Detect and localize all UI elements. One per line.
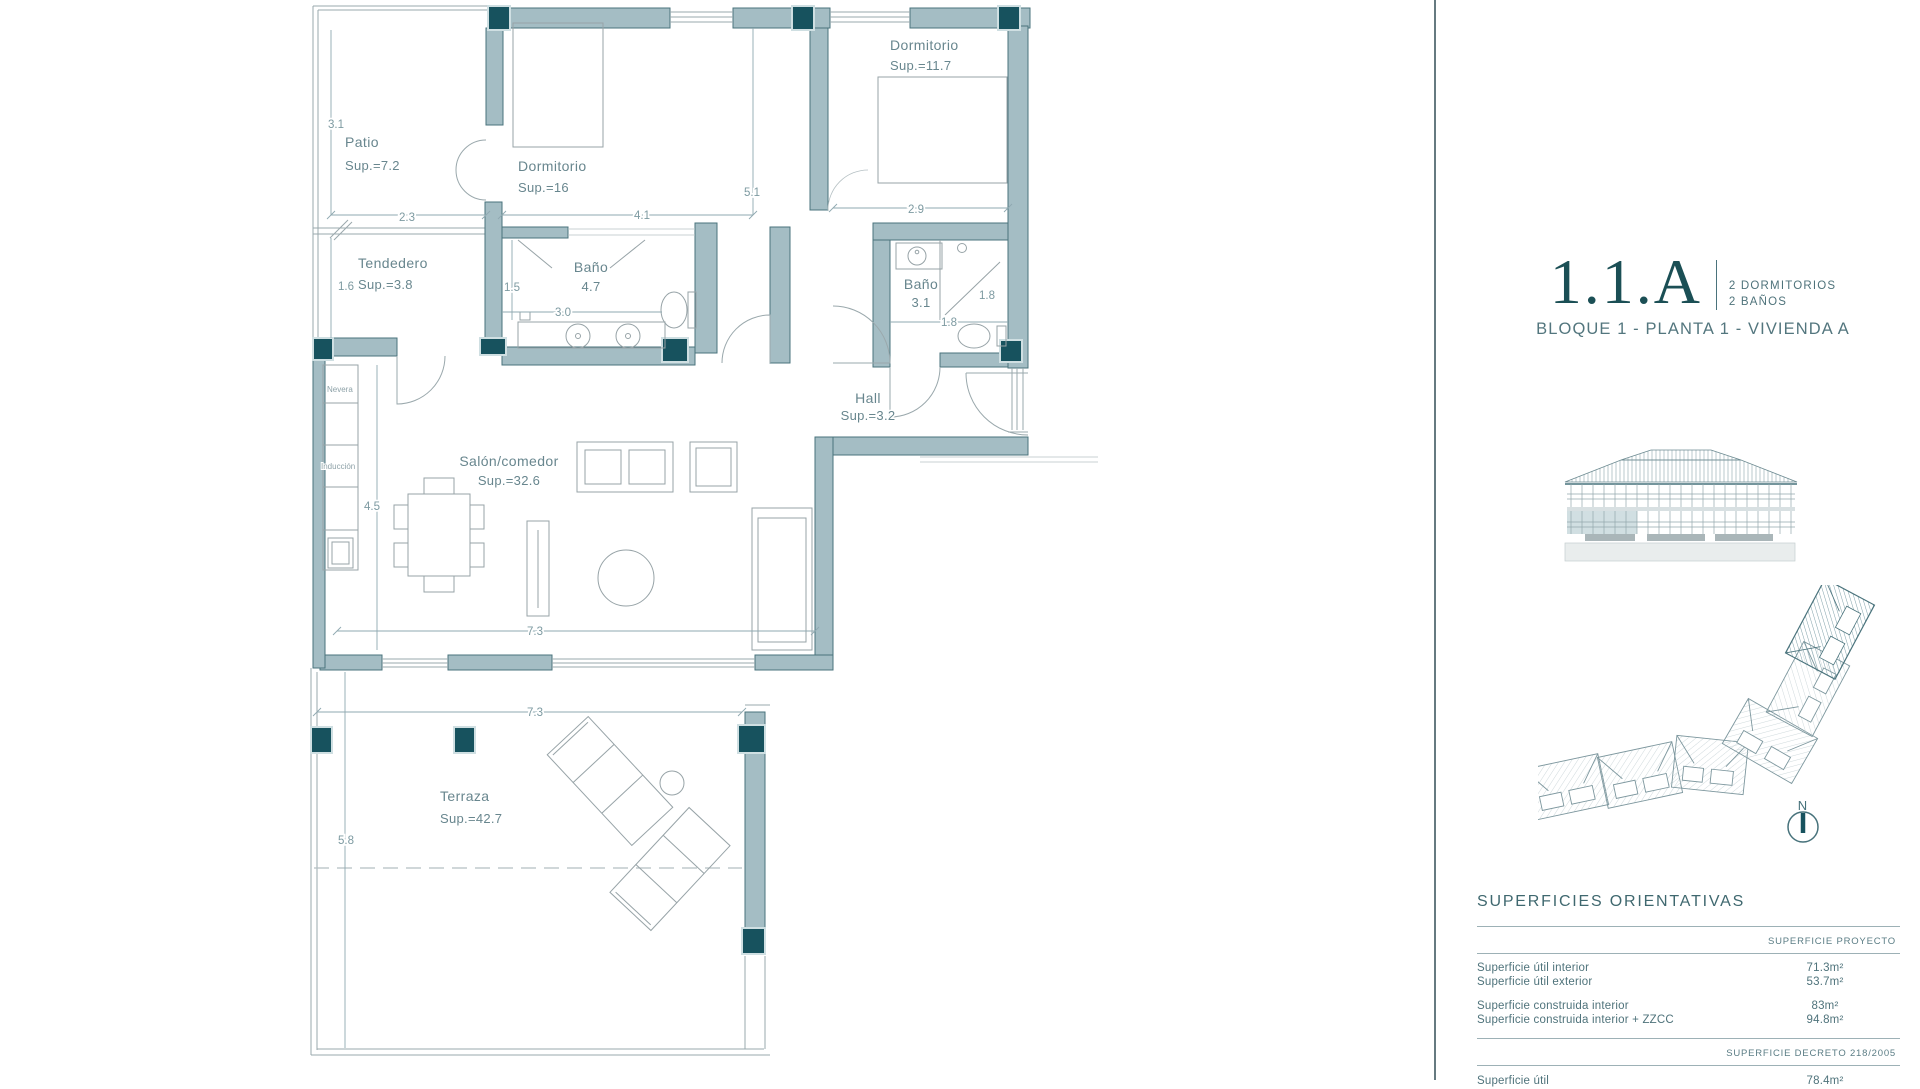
surface-row: Superficie útil 78.4m² (1477, 1075, 1900, 1089)
surfaces-decree-header: SUPERFICIE DECRETO 218/2005 (1477, 1039, 1900, 1065)
bathroom1-fixtures (518, 240, 696, 348)
room-dormitorio1-sup: Sup.=16 (518, 180, 569, 195)
dim-terraza-w: 7.3 (527, 707, 543, 719)
dim-dorm2-w: 2.9 (908, 204, 924, 216)
room-tendedero-sup: Sup.=3.8 (358, 277, 413, 292)
dim-bano1-gap: 1.5 (504, 282, 520, 294)
site-plan: N (1538, 585, 1878, 853)
feature-separator (1716, 260, 1717, 310)
surface-row: Superficie útil interior 71.3m² (1477, 962, 1900, 976)
surface-row: Superficie útil exterior 53.7m² (1477, 976, 1900, 990)
building-elevation (1563, 446, 1799, 568)
dimension-lines (313, 28, 1012, 1048)
north-arrow: N (1788, 798, 1818, 842)
page: Nevera Inducción (0, 0, 1920, 1080)
dim-bano2-shower: 1.8 (979, 290, 995, 302)
highlighted-unit (1567, 508, 1637, 534)
hob-label: Inducción (321, 462, 355, 471)
north-label: N (1798, 798, 1808, 813)
room-labels: Patio Sup.=7.2 Dormitorio Sup.=16 Dormit… (345, 37, 959, 826)
tv-sideboard (577, 442, 737, 492)
dim-dorm1-w: 4.1 (634, 210, 650, 222)
room-dormitorio2: Dormitorio (890, 37, 959, 53)
room-hall-sup: Sup.=3.2 (841, 408, 896, 423)
room-hall: Hall (855, 390, 881, 406)
dining-set (394, 478, 484, 592)
floor-plan: Nevera Inducción (0, 0, 1435, 1080)
unit-code: 1.1.A (1550, 250, 1702, 314)
panel-divider (1434, 0, 1436, 1080)
dim-bano1-w: 3.0 (555, 307, 571, 319)
dim-salon-h: 4.5 (364, 501, 380, 513)
dim-terraza-h: 5.8 (338, 835, 354, 847)
sofa-and-table (527, 508, 812, 650)
room-bano1-sup: 4.7 (582, 279, 601, 294)
site-blocks (1538, 641, 1850, 820)
surfaces-project-header: SUPERFICIE PROYECTO (1477, 927, 1900, 953)
pillars (311, 6, 1022, 954)
surface-row: Superficie construida interior + ZZCC 94… (1477, 1014, 1900, 1028)
surfaces-title: SUPERFICIES ORIENTATIVAS (1477, 893, 1900, 911)
room-dormitorio1: Dormitorio (518, 158, 587, 174)
dim-bano2-w: 1.8 (941, 317, 957, 329)
room-terraza: Terraza (440, 788, 489, 804)
surfaces-table: SUPERFICIES ORIENTATIVAS SUPERFICIE PROY… (1477, 893, 1900, 1089)
dim-patio-w: 2.3 (399, 212, 415, 224)
room-tendedero: Tendedero (358, 255, 428, 271)
room-salon-sup: Sup.=32.6 (478, 473, 540, 488)
room-bano2-sup: 3.1 (912, 295, 931, 310)
room-patio-sup: Sup.=7.2 (345, 158, 400, 173)
unit-location: BLOQUE 1 - PLANTA 1 - VIVIENDA A (1528, 320, 1858, 339)
room-salon: Salón/comedor (459, 453, 558, 469)
title-block: 1.1.A 2 DORMITORIOS 2 BAÑOS BLOQUE 1 - P… (1528, 250, 1858, 339)
terraza-loungers (547, 717, 730, 931)
dim-patio-h: 3.1 (328, 119, 344, 131)
room-patio: Patio (345, 134, 379, 150)
dim-salon-w: 7.3 (527, 626, 543, 638)
feature-bathrooms: 2 BAÑOS (1729, 296, 1836, 308)
walls (313, 8, 1030, 928)
dim-dorm1-h: 5.1 (744, 187, 760, 199)
feature-bedrooms: 2 DORMITORIOS (1729, 280, 1836, 292)
room-dormitorio2-sup: Sup.=11.7 (890, 58, 951, 73)
room-bano2: Baño (904, 276, 938, 292)
fridge-label: Nevera (327, 385, 353, 394)
terraza-boundary (311, 668, 770, 1055)
surface-row: Superficie construida interior 83m² (1477, 1000, 1900, 1014)
room-bano1: Baño (574, 259, 608, 275)
room-terraza-sup: Sup.=42.7 (440, 811, 502, 826)
dim-tendedero-h: 1.6 (338, 281, 354, 293)
